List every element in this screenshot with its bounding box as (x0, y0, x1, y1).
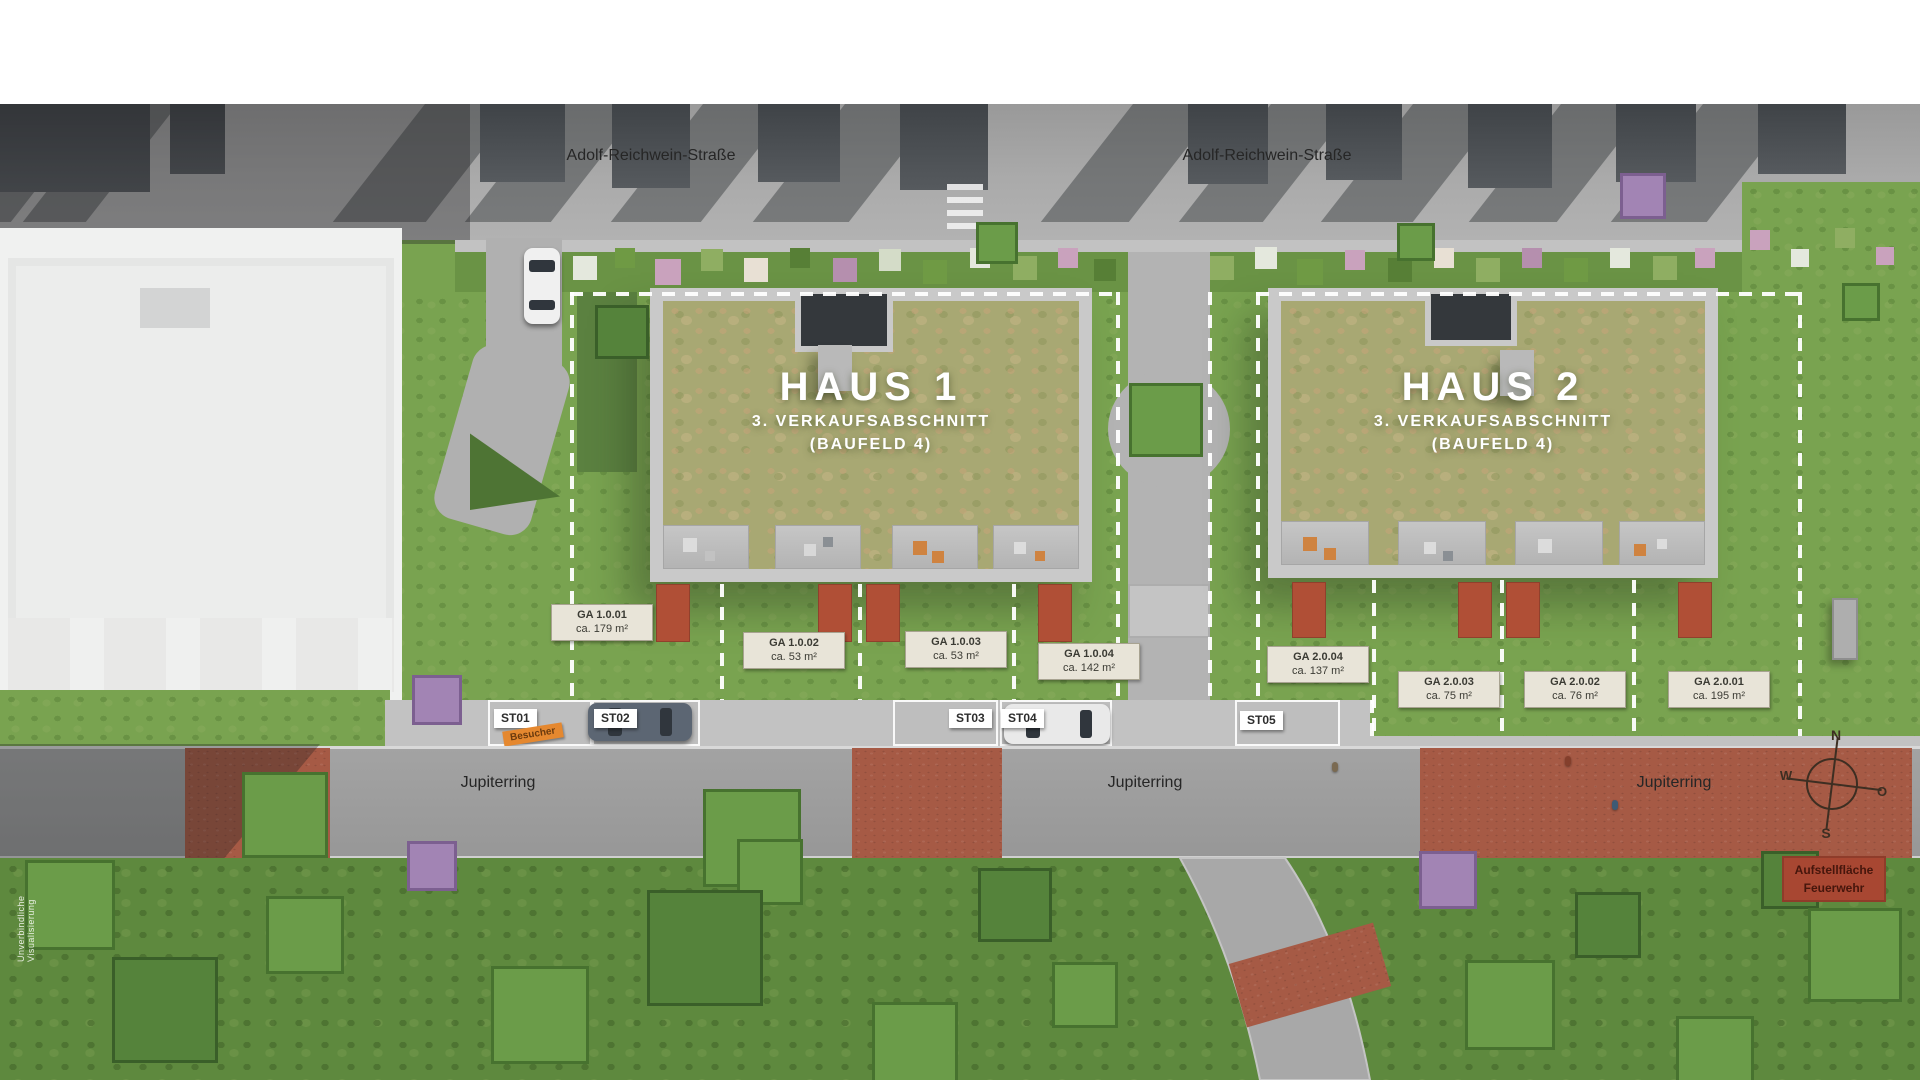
garden-label: GA 1.0.04ca. 142 m² (1038, 643, 1140, 680)
corner-lawn (1742, 182, 1920, 294)
plot2-boundary-step (1370, 700, 1374, 740)
terrace (1619, 521, 1705, 565)
utility-cabinet (1832, 598, 1858, 660)
garden-size: ca. 195 m² (1673, 689, 1765, 703)
neighbor-building-roof (758, 104, 840, 182)
terrace-paving (1506, 582, 1540, 638)
garden-size: ca. 137 m² (1272, 664, 1364, 678)
haus-1-name: HAUS 1 (650, 366, 1092, 408)
terrace-paving (656, 584, 690, 642)
parked-car-driveway (524, 248, 560, 324)
fire-lane-line1: Aufstellfläche (1786, 861, 1882, 879)
red-paving-mid (852, 748, 1002, 858)
fire-lane-label: Aufstellfläche Feuerwehr (1782, 856, 1886, 902)
parking-label-st03: ST03 (949, 709, 992, 728)
fade-overlay (0, 228, 402, 700)
garden-id: GA 2.0.02 (1550, 676, 1600, 688)
parking-label-st01: ST01 (494, 709, 537, 728)
garden-size: ca. 75 m² (1403, 689, 1495, 703)
left-lawn-strip (0, 690, 390, 748)
garden-label: GA 2.0.03ca. 75 m² (1398, 671, 1500, 708)
terrace (1281, 521, 1369, 565)
haus-2-field: (BAUFELD 4) (1268, 436, 1718, 454)
compass-rose: N W O S (1772, 722, 1912, 844)
central-walkway (1128, 252, 1210, 748)
parking-label-st02: ST02 (594, 709, 637, 728)
compass-west-label: W (1780, 768, 1793, 783)
garden-id: GA 1.0.04 (1064, 648, 1114, 660)
roof-skylight (1425, 288, 1517, 346)
neighbor-building-roof (480, 104, 565, 182)
walkway-pad (1128, 584, 1210, 638)
garden-id: GA 1.0.03 (931, 636, 981, 648)
garden-id: GA 1.0.01 (577, 609, 627, 621)
garden-size: ca. 76 m² (1529, 689, 1621, 703)
pedestrian (1565, 756, 1571, 766)
garden-size: ca. 179 m² (556, 622, 648, 636)
terrace (892, 525, 978, 569)
car-rear-window (529, 300, 555, 310)
garden-label: GA 2.0.02ca. 76 m² (1524, 671, 1626, 708)
garden-label: GA 2.0.04ca. 137 m² (1267, 646, 1369, 683)
garden-id: GA 2.0.03 (1424, 676, 1474, 688)
neighbor-building-roof (1326, 104, 1402, 180)
compass-south-label: S (1821, 825, 1830, 841)
plot2-boundary-top (1256, 292, 1802, 296)
neighbor-building-roof (1468, 104, 1552, 188)
garden-size: ca. 53 m² (748, 650, 840, 664)
car-windshield (529, 260, 555, 272)
street-label-adolf-reichwein-1: Adolf-Reichwein-Straße (551, 147, 751, 165)
top-whitespace (0, 0, 1920, 104)
site-plan: Adolf-Reichwein-Straße Adolf-Reichwein-S… (0, 0, 1920, 1080)
parking-label-st04: ST04 (1001, 709, 1044, 728)
neighbor-building-roof (1188, 104, 1268, 184)
haus-2-label: HAUS 2 3. VERKAUFSABSCHNITT (BAUFELD 4) (1268, 366, 1718, 454)
neighbor-building-roof (1758, 104, 1846, 174)
front-garden-hedge (577, 292, 637, 472)
car-rear-window (660, 708, 672, 736)
garden-separator (720, 584, 724, 700)
street-label-jupiterring-1: Jupiterring (438, 774, 558, 792)
terrace-paving (1038, 584, 1072, 642)
haus-1-label: HAUS 1 3. VERKAUFSABSCHNITT (BAUFELD 4) (650, 366, 1092, 454)
garden-label: GA 1.0.03ca. 53 m² (905, 631, 1007, 668)
terrace-paving (1458, 582, 1492, 638)
existing-building (0, 228, 402, 700)
terrace (775, 525, 861, 569)
garden-id: GA 2.0.04 (1293, 651, 1343, 663)
street-label-jupiterring-3: Jupiterring (1614, 774, 1734, 792)
garden-separator (1500, 580, 1504, 738)
fire-lane-line2: Feuerwehr (1786, 879, 1882, 897)
terrace-paving (866, 584, 900, 642)
watermark: Unverbindliche Visualisierung (16, 842, 36, 962)
terrace (1398, 521, 1486, 565)
pedestrian (1612, 800, 1618, 810)
neighbor-building-roof (900, 104, 988, 190)
haus-1-field: (BAUFELD 4) (650, 436, 1092, 454)
road-shadow (0, 104, 470, 244)
haus-2-name: HAUS 2 (1268, 366, 1718, 408)
plot2-boundary-left (1256, 292, 1260, 704)
parking-label-st05: ST05 (1240, 711, 1283, 730)
planting-strip (455, 252, 1742, 292)
street-label-jupiterring-2: Jupiterring (1085, 774, 1205, 792)
terrace (663, 525, 749, 569)
garden-separator (1012, 584, 1016, 700)
terrace (1515, 521, 1603, 565)
garden-size: ca. 142 m² (1043, 661, 1135, 675)
neighbor-building-roof (612, 104, 690, 188)
compass-east-label: O (1877, 784, 1887, 799)
garden-label: GA 1.0.02ca. 53 m² (743, 632, 845, 669)
garden-label: GA 2.0.01ca. 195 m² (1668, 671, 1770, 708)
compass-we-line (1786, 778, 1881, 790)
compass-north-label: N (1831, 727, 1841, 743)
pedestrian (1332, 762, 1338, 772)
garden-label: GA 1.0.01ca. 179 m² (551, 604, 653, 641)
garden-separator (858, 584, 862, 700)
haus-2-phase: 3. VERKAUFSABSCHNITT (1268, 413, 1718, 431)
plot2-boundary-right (1798, 292, 1802, 740)
car-rear-window (1080, 710, 1092, 738)
garden-size: ca. 53 m² (910, 649, 1002, 663)
crosswalk (947, 184, 983, 236)
neighbor-building-roof (1616, 104, 1696, 182)
plot1-boundary-top (570, 292, 1118, 296)
street-label-adolf-reichwein-2: Adolf-Reichwein-Straße (1167, 147, 1367, 165)
terrace-paving (1292, 582, 1326, 638)
park (0, 858, 1920, 1080)
haus-1-phase: 3. VERKAUFSABSCHNITT (650, 413, 1092, 431)
garden-id: GA 1.0.02 (769, 637, 819, 649)
garden-id: GA 2.0.01 (1694, 676, 1744, 688)
garden-separator (1632, 580, 1636, 738)
walkway-boundary-east (1208, 292, 1212, 740)
roof-skylight (795, 288, 893, 352)
terrace-paving (1678, 582, 1712, 638)
terrace (993, 525, 1079, 569)
